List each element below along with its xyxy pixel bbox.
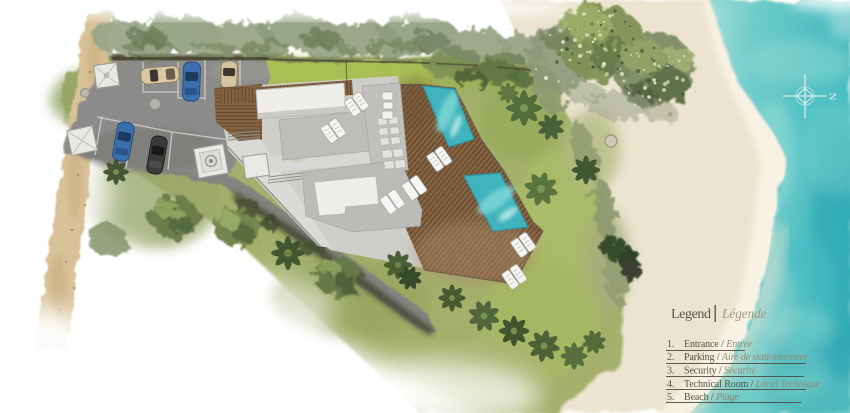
svg-text:Parking / Aire de stationnemen: Parking / Aire de stationnement — [684, 352, 808, 363]
svg-text:Technical Room / Local Techniq: Technical Room / Local Technique — [684, 379, 821, 390]
svg-text:3.: 3. — [667, 366, 674, 377]
svg-text:N: N — [826, 93, 838, 101]
svg-text:Entrance / Entrée: Entrance / Entrée — [684, 339, 753, 350]
svg-text:1.: 1. — [667, 339, 674, 350]
svg-text:4.: 4. — [667, 379, 674, 390]
svg-text:2.: 2. — [667, 352, 674, 363]
svg-text:Légende: Légende — [721, 306, 767, 321]
svg-text:5.: 5. — [667, 392, 674, 403]
svg-text:Legend: Legend — [671, 307, 711, 322]
svg-text:Beach / Plage: Beach / Plage — [684, 392, 739, 403]
svg-text:Security / Sécurité: Security / Sécurité — [684, 366, 757, 377]
